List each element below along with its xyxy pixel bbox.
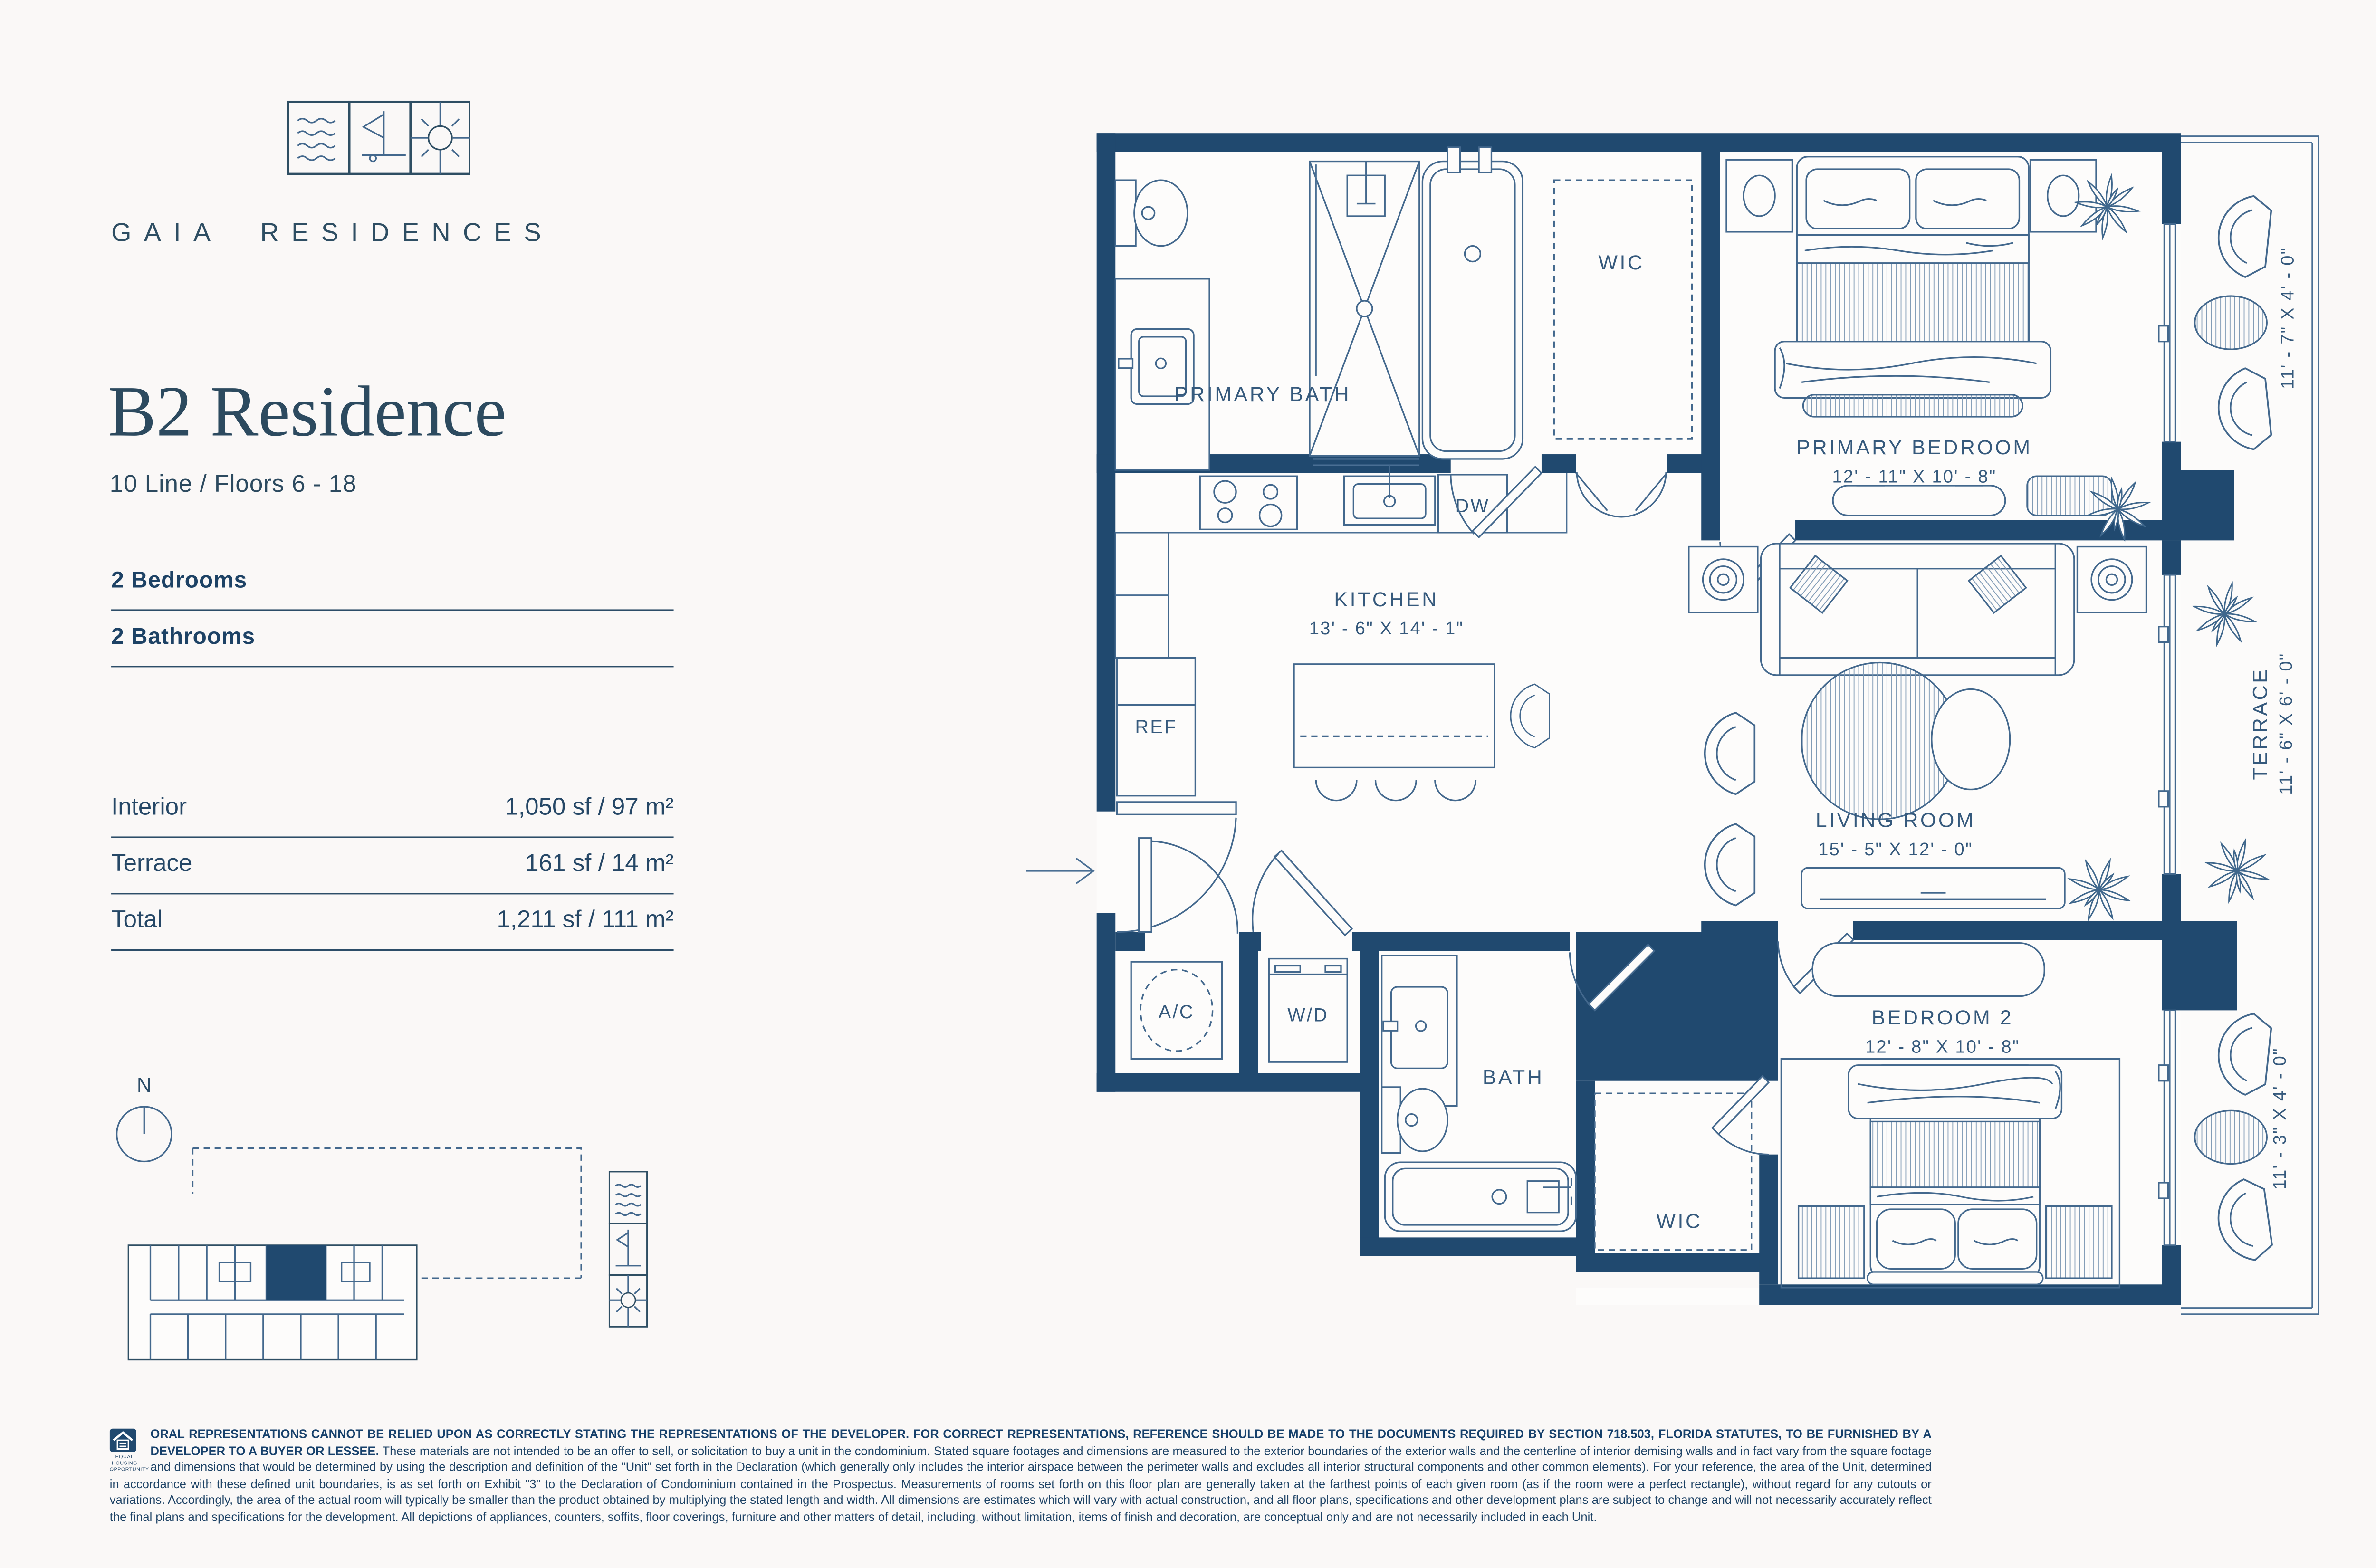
site-icon-strip	[609, 1172, 647, 1327]
room-label-wic2: WIC	[1656, 1210, 1702, 1233]
nightstand	[1799, 1206, 1864, 1278]
unit-title: B2 Residence	[108, 370, 506, 453]
side-table	[2077, 547, 2146, 612]
nightstand	[2046, 1206, 2111, 1278]
room-label-wic1: WIC	[1599, 251, 1645, 274]
island	[1294, 664, 1495, 768]
divider	[111, 609, 674, 611]
disclaimer: EQUAL HOUSING OPPORTUNITY ORAL REPRESENT…	[110, 1427, 1932, 1526]
area-value-total: 1,211 sf / 111 m²	[111, 907, 674, 935]
terrace-table	[2195, 1110, 2267, 1164]
label-wd: W/D	[1287, 1004, 1329, 1025]
room-label-kitchen: KITCHEN	[1334, 588, 1438, 611]
label-ref: REF	[1135, 717, 1177, 737]
terrace-label: TERRACE	[2249, 668, 2271, 780]
room-label-primary-bath: PRIMARY BATH	[1174, 383, 1351, 406]
waves-icon	[288, 102, 350, 174]
room-dims-living: 15' - 5" X 12' - 0"	[1818, 840, 1973, 860]
sheet-stage: GAIA RESIDENCES B2 Residence 10 Line / F…	[0, 0, 2376, 1568]
bathtub	[1422, 162, 1523, 459]
room-label-bath2: BATH	[1483, 1066, 1544, 1089]
bench	[1833, 486, 2005, 516]
building-key	[128, 1245, 417, 1360]
compass-north-label: N	[137, 1074, 152, 1097]
terrace-dims: 11' - 6" X 6' - 0"	[2276, 652, 2296, 794]
entry-arrow	[1026, 859, 1093, 884]
entry-door	[1117, 802, 1236, 814]
equal-housing-icon	[110, 1429, 136, 1454]
room-dims-primary-bedroom: 12' - 11" X 10' - 8"	[1832, 467, 1997, 487]
coffee-table	[1932, 689, 2010, 790]
divider	[111, 836, 674, 838]
floorplan-sheet: GAIA RESIDENCES B2 Residence 10 Line / F…	[0, 0, 2376, 1568]
side-table	[1689, 547, 1758, 612]
area-value-terrace: 161 sf / 14 m²	[111, 851, 674, 879]
dresser	[1812, 943, 2044, 996]
equal-housing-logo: EQUAL HOUSING OPPORTUNITY	[110, 1429, 140, 1473]
disclaimer-body: These materials are not intended to be a…	[110, 1444, 1932, 1524]
waves-icon	[616, 1185, 641, 1215]
toilet	[1115, 180, 1136, 246]
room-dims-bedroom2: 12' - 8" X 10' - 8"	[1865, 1037, 2020, 1057]
room-label-primary-bedroom: PRIMARY BEDROOM	[1796, 436, 2032, 459]
nightstand	[1726, 160, 1792, 232]
headboard	[1868, 1272, 2043, 1284]
floor-plan: PRIMARY BATH WIC PRIMARY BEDRO	[1026, 110, 2350, 1363]
area-value-interior: 1,050 sf / 97 m²	[111, 794, 674, 822]
compass-north: N	[117, 1074, 172, 1162]
tv-console	[1801, 868, 2065, 908]
brand-name: GAIA RESIDENCES	[111, 220, 554, 249]
sun-icon	[411, 102, 470, 174]
site-key-plan: N	[94, 1042, 674, 1370]
highlighted-unit	[266, 1245, 326, 1300]
feature-bathrooms: 2 Bathrooms	[111, 625, 255, 650]
unit-subtitle: 10 Line / Floors 6 - 18	[110, 471, 357, 499]
room-label-bedroom2: BEDROOM 2	[1872, 1006, 2014, 1029]
divider	[111, 949, 674, 951]
feature-bedrooms: 2 Bedrooms	[111, 569, 247, 594]
stove	[1200, 476, 1297, 529]
terrace-upper-dims: 11' - 7" X 4' - 0"	[2278, 247, 2298, 389]
terrace-table	[2195, 296, 2267, 349]
room-dims-kitchen: 13' - 6" X 14' - 1"	[1309, 619, 1464, 639]
sail-icon	[349, 102, 411, 174]
label-ac: A/C	[1159, 1002, 1195, 1023]
terrace-lower-dims: 11' - 3" X 4' - 0"	[2270, 1047, 2290, 1189]
equal-housing-caption: EQUAL HOUSING OPPORTUNITY	[110, 1455, 140, 1473]
ac-door	[1139, 838, 1151, 932]
room-label-living: LIVING ROOM	[1816, 809, 1975, 832]
divider	[111, 666, 674, 667]
divider	[111, 893, 674, 894]
brand-logo	[287, 100, 470, 175]
primary-bath: PRIMARY BATH	[1115, 147, 1523, 470]
